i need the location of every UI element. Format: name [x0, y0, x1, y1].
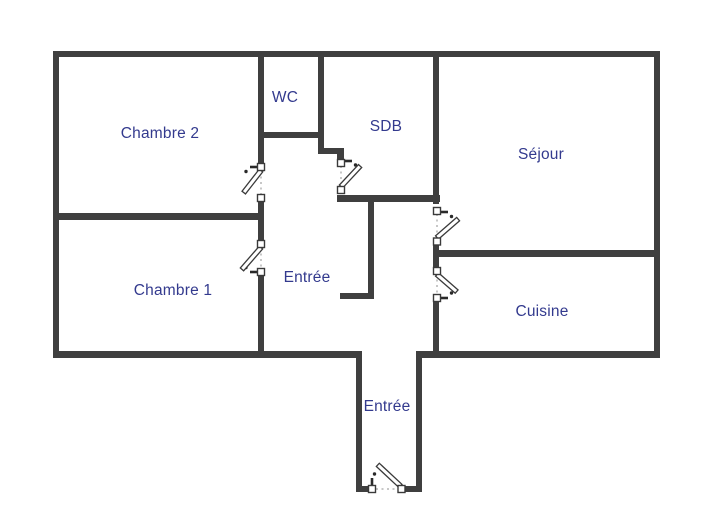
doors	[240, 160, 459, 493]
wall-outer-left	[53, 51, 59, 358]
room-label-sdb: SDB	[370, 118, 402, 135]
door-stop-dot	[244, 170, 247, 173]
wall-chambre-divider	[53, 213, 264, 220]
wall-hall-partition-vertical	[368, 202, 374, 299]
room-label-cuisine: Cuisine	[515, 303, 568, 320]
room-label-sejour: Séjour	[518, 146, 564, 163]
door-jamb	[338, 160, 345, 167]
door-jamb	[398, 486, 405, 493]
wall-hall-mid	[258, 201, 264, 241]
wall-outer-bottom-left	[53, 351, 362, 358]
door-leaf	[240, 246, 262, 271]
door-leaf	[436, 273, 459, 293]
door-leaf	[436, 217, 460, 239]
door-jamb	[338, 187, 345, 194]
wall-cuisine-lower	[433, 301, 439, 358]
door-leaf	[339, 165, 361, 188]
wall-outer-bottom-right	[416, 351, 660, 358]
door-jamb	[434, 295, 441, 302]
room-label-chambre2: Chambre 2	[121, 125, 199, 142]
floor-plan-diagram: Chambre 2 WC SDB Séjour Chambre 1 Entrée…	[0, 0, 709, 523]
door-jamb	[434, 268, 441, 275]
door-leaf	[376, 463, 402, 487]
door-swing-icon-sdb	[338, 160, 362, 194]
floor-plan-canvas: Chambre 2 WC SDB Séjour Chambre 1 Entrée…	[0, 0, 709, 523]
door-swing-icon-entrance	[369, 463, 406, 492]
wall-wc-right	[318, 57, 324, 152]
door-jamb	[258, 241, 265, 248]
room-label-chambre1: Chambre 1	[134, 282, 212, 299]
wall-outer-right	[654, 51, 660, 358]
door-jamb	[258, 269, 265, 276]
door-stop-dot	[450, 215, 453, 218]
wall-sdb-bottom	[337, 195, 440, 202]
door-swing-icon-chambre1	[240, 241, 264, 276]
door-swing-icon-cuisine	[434, 268, 459, 302]
wall-corridor-left	[356, 351, 362, 492]
room-label-entree-hall: Entrée	[284, 269, 331, 286]
door-jamb	[258, 164, 265, 171]
wall-sdb-jog-vertical	[337, 148, 344, 160]
wall-corridor-right	[416, 351, 422, 492]
wall-outer-top	[53, 51, 660, 57]
wall-hall-partition-hook	[340, 293, 374, 299]
door-stop-dot	[373, 472, 376, 475]
wall-hall-upper	[258, 57, 264, 165]
wall-sejour-cuisine-divider	[433, 250, 660, 257]
room-label-wc: WC	[272, 89, 298, 106]
wall-wc-bottom	[258, 132, 324, 138]
room-label-entree-entrance: Entrée	[364, 398, 411, 415]
door-swing-icon-sejour	[434, 208, 460, 246]
door-jamb	[434, 238, 441, 245]
door-jamb	[434, 208, 441, 215]
door-jamb	[258, 195, 265, 202]
wall-hall-lower	[258, 275, 264, 352]
door-swing-icon-chambre2	[242, 164, 264, 202]
wall-sejour-upper	[433, 57, 439, 204]
door-jamb	[369, 486, 376, 493]
walls	[53, 51, 660, 492]
